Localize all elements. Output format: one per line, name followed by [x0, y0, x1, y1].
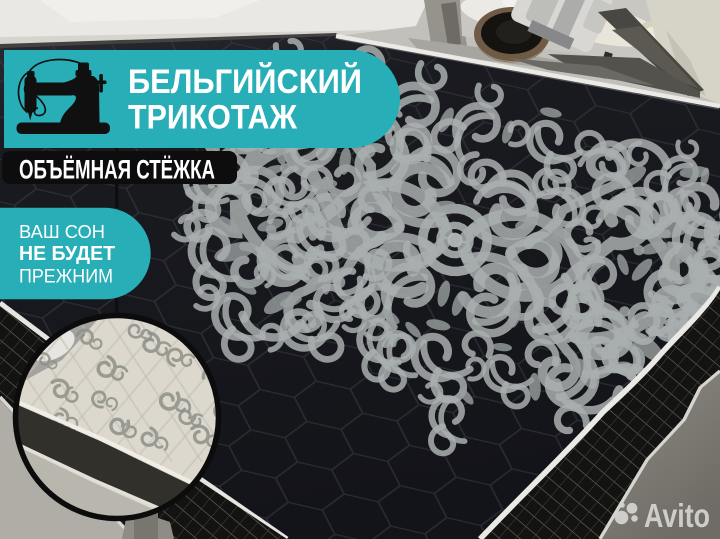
svg-text:ОБЪЁМНАЯ СТЁЖКА: ОБЪЁМНАЯ СТЁЖКА: [19, 155, 215, 185]
svg-text:ТРИКОТАЖ: ТРИКОТАЖ: [128, 99, 297, 137]
svg-text:ПРЕЖНИМ: ПРЕЖНИМ: [19, 266, 113, 288]
svg-text:БЕЛЬГИЙСКИЙ: БЕЛЬГИЙСКИЙ: [128, 62, 362, 101]
svg-text:НЕ БУДЕТ: НЕ БУДЕТ: [19, 243, 115, 265]
svg-text:Avito: Avito: [644, 497, 710, 534]
svg-text:ВАШ СОН: ВАШ СОН: [19, 222, 105, 242]
